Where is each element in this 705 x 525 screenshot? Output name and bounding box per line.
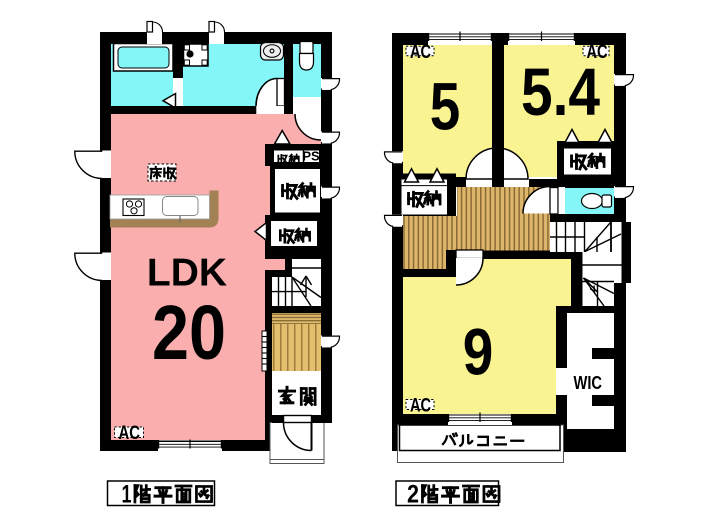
svg-text:20: 20 xyxy=(152,290,226,376)
svg-text:9: 9 xyxy=(463,314,494,388)
svg-text:5: 5 xyxy=(430,69,461,144)
svg-text:AC: AC xyxy=(410,41,431,63)
svg-text:AC: AC xyxy=(119,422,141,444)
svg-text:WIC: WIC xyxy=(574,372,603,393)
svg-text:2: 2 xyxy=(407,481,419,509)
svg-text:AC: AC xyxy=(410,394,431,416)
svg-text:1: 1 xyxy=(122,481,132,509)
svg-text:LDK: LDK xyxy=(147,252,227,295)
svg-text:5.4: 5.4 xyxy=(521,55,600,130)
svg-text:PS: PS xyxy=(302,149,320,164)
